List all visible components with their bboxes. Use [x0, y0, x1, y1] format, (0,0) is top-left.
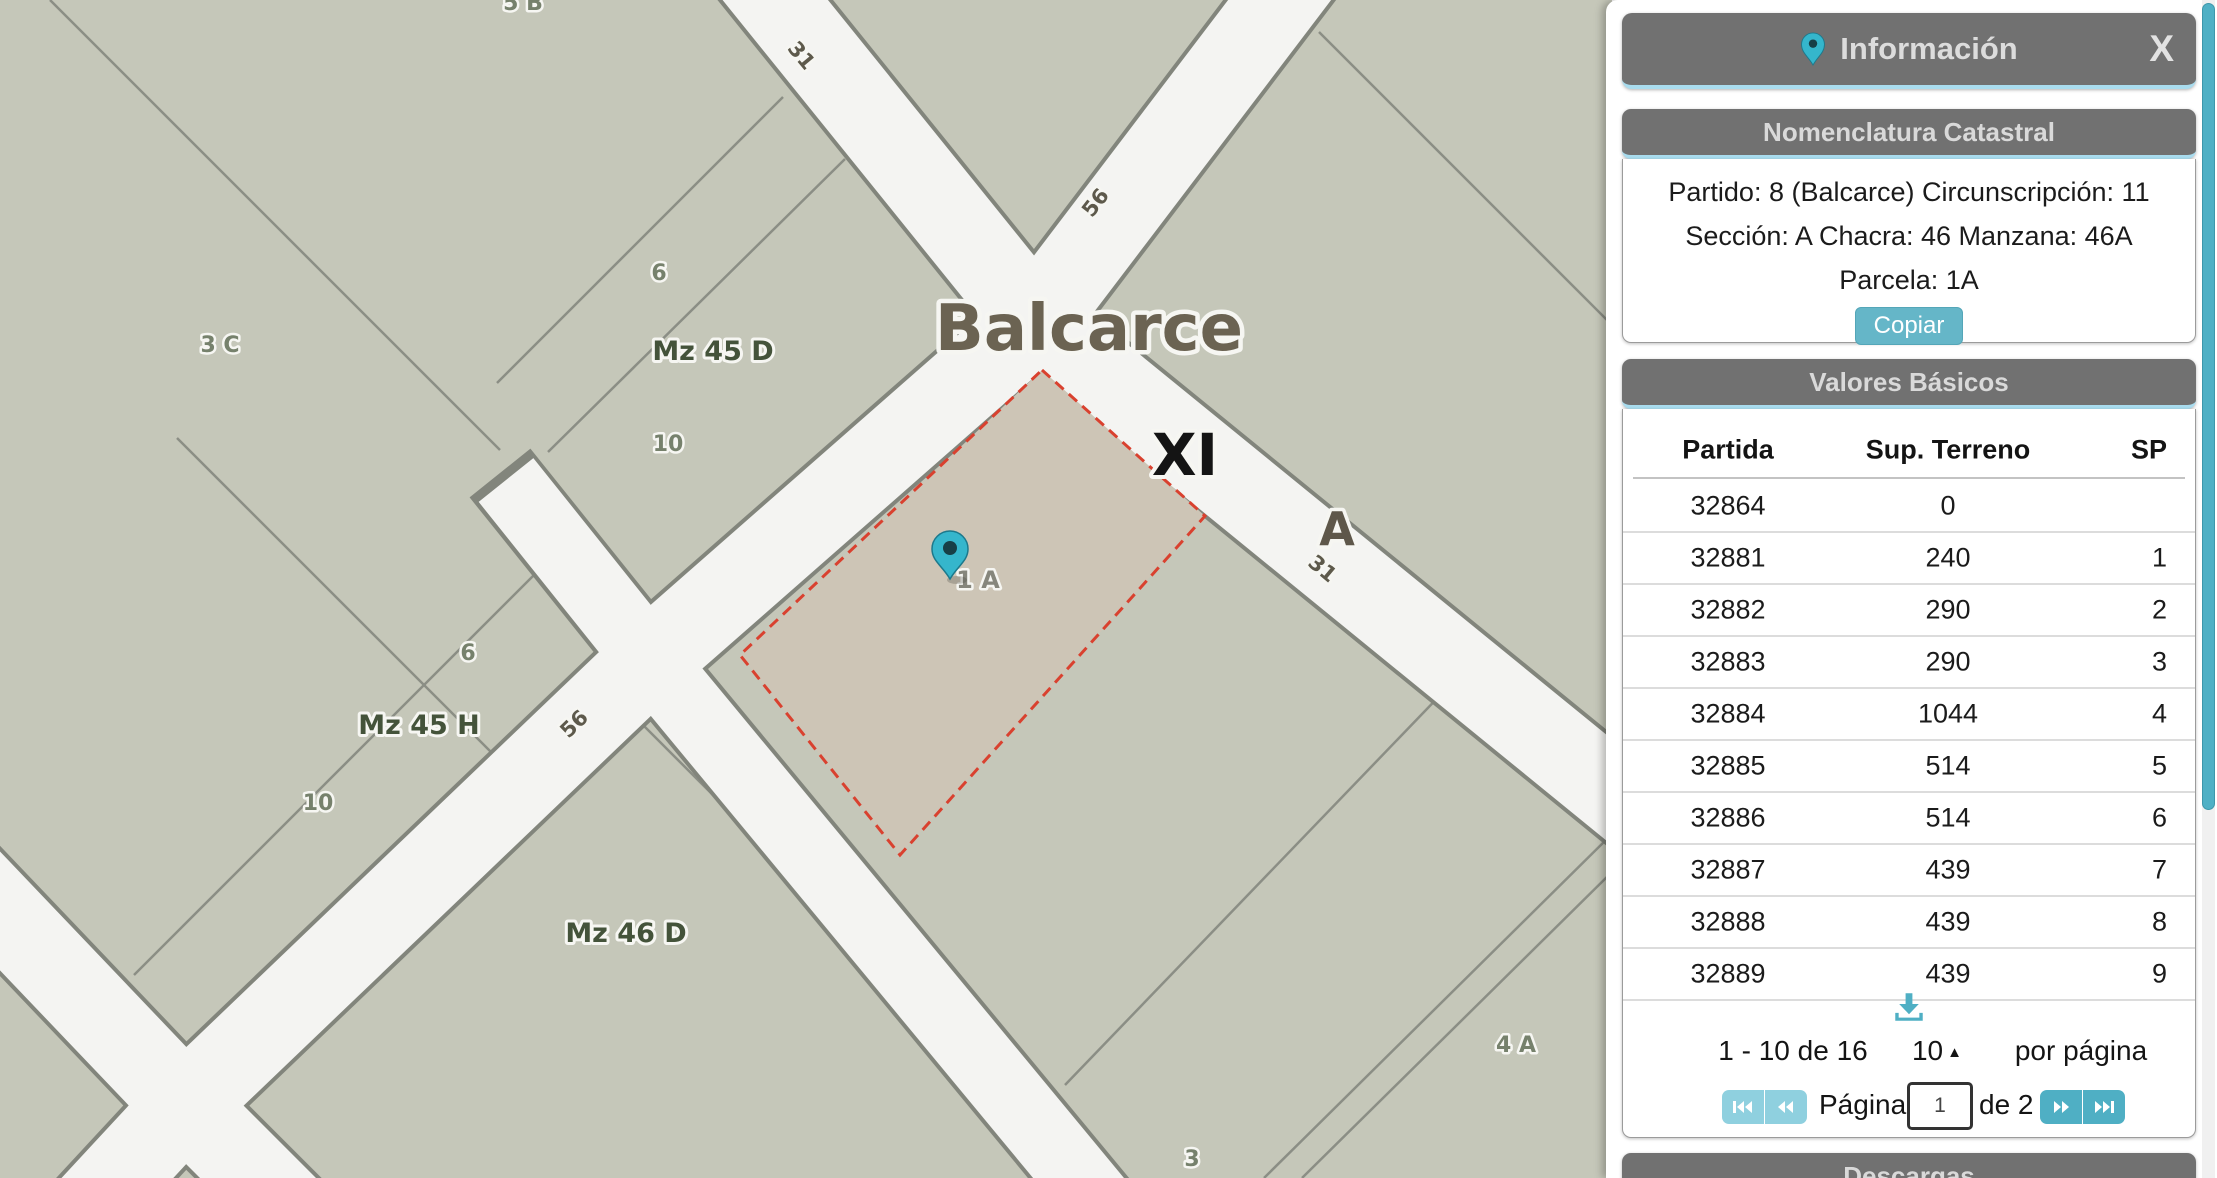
- table-body: 3286403288124013288229023288329033288410…: [1623, 481, 2195, 1001]
- nomenclatura-line: Partido: 8 (Balcarce) Circunscripción: 1…: [1623, 170, 2195, 214]
- sp-cell: 6: [2067, 803, 2167, 834]
- map-canvas[interactable]: 31565631 Mz 45 DMz 45 HMz 46 D 3 C5 B610…: [0, 0, 1612, 1178]
- parcel-number-label: 6: [651, 261, 666, 286]
- sup-terreno-cell: 439: [1803, 855, 2093, 886]
- sp-cell: 7: [2067, 855, 2167, 886]
- sup-terreno-cell: 240: [1803, 543, 2093, 574]
- section-label: A: [1319, 502, 1355, 556]
- page-size-value: 10: [1912, 1035, 1943, 1066]
- partida-cell: 32889: [1653, 959, 1803, 990]
- table-row[interactable]: 328822902: [1623, 585, 2195, 637]
- pin-icon: [1800, 31, 1826, 67]
- sup-terreno-cell: 514: [1803, 751, 2093, 782]
- descargas-title: Descargas: [1843, 1161, 1975, 1178]
- table-row[interactable]: 328855145: [1623, 741, 2195, 793]
- per-page-label: por página: [1991, 1035, 2171, 1067]
- parcel-number-label: 10: [303, 791, 334, 816]
- nomenclatura-title: Nomenclatura Catastral: [1763, 117, 2055, 148]
- partida-cell: 32864: [1653, 491, 1803, 522]
- parcel-number-label: 3: [1184, 1147, 1199, 1172]
- last-page-icon: [2093, 1100, 2115, 1114]
- table-row[interactable]: 328640: [1623, 481, 2195, 533]
- download-button[interactable]: [1623, 991, 2195, 1028]
- page-size-dropdown[interactable]: 10▲: [1899, 1035, 1975, 1067]
- block-label: Mz 46 D: [565, 918, 686, 949]
- table-row[interactable]: 3288410444: [1623, 689, 2195, 741]
- copy-button[interactable]: Copiar: [1855, 307, 1964, 345]
- column-header-partida: Partida: [1653, 435, 1803, 466]
- table-row[interactable]: 328865146: [1623, 793, 2195, 845]
- block-label: Mz 45 H: [358, 710, 480, 741]
- sup-terreno-cell: 290: [1803, 647, 2093, 678]
- download-icon: [1892, 991, 1926, 1023]
- sup-terreno-cell: 290: [1803, 595, 2093, 626]
- panel-scrollbar-thumb[interactable]: [2202, 3, 2215, 810]
- partida-cell: 32882: [1653, 595, 1803, 626]
- partida-cell: 32888: [1653, 907, 1803, 938]
- nomenclatura-line: Parcela: 1A: [1623, 258, 2195, 302]
- table-row[interactable]: 328812401: [1623, 533, 2195, 585]
- partida-cell: 32883: [1653, 647, 1803, 678]
- parcel-number-label: 5 B: [503, 0, 543, 16]
- sp-cell: 2: [2067, 595, 2167, 626]
- info-panel: Información X Nomenclatura Catastral Par…: [1606, 0, 2217, 1178]
- pagination-summary: 1 - 10 de 16 10▲ por página: [1623, 1035, 2195, 1075]
- sp-cell: 9: [2067, 959, 2167, 990]
- partida-cell: 32887: [1653, 855, 1803, 886]
- roman-numeral-label: XI: [1152, 421, 1218, 489]
- sp-cell: 3: [2067, 647, 2167, 678]
- sup-terreno-cell: 439: [1803, 907, 2093, 938]
- table-row[interactable]: 328884398: [1623, 897, 2195, 949]
- sp-cell: 4: [2067, 699, 2167, 730]
- previous-page-icon: [1776, 1100, 1796, 1114]
- previous-page-button[interactable]: [1765, 1090, 1807, 1124]
- partida-cell: 32885: [1653, 751, 1803, 782]
- partida-cell: 32881: [1653, 543, 1803, 574]
- first-page-button[interactable]: [1722, 1090, 1764, 1124]
- next-page-icon: [2051, 1100, 2071, 1114]
- descargas-section-header: Descargas: [1622, 1153, 2196, 1178]
- table-row[interactable]: 328874397: [1623, 845, 2195, 897]
- city-label: Balcarce: [935, 292, 1243, 366]
- sup-terreno-cell: 439: [1803, 959, 2093, 990]
- nomenclatura-line: Sección: A Chacra: 46 Manzana: 46A: [1623, 214, 2195, 258]
- page-number-input[interactable]: [1907, 1082, 1973, 1130]
- last-page-button[interactable]: [2083, 1090, 2125, 1124]
- sup-terreno-cell: 1044: [1803, 699, 2093, 730]
- next-page-button[interactable]: [2040, 1090, 2082, 1124]
- nomenclatura-body: Partido: 8 (Balcarce) Circunscripción: 1…: [1622, 159, 2196, 343]
- parcel-number-label: 4 A: [1496, 1033, 1536, 1058]
- valores-section-header: Valores Básicos: [1622, 359, 2196, 409]
- sp-cell: 8: [2067, 907, 2167, 938]
- dropdown-arrow-icon: ▲: [1947, 1044, 1962, 1061]
- column-header-sp: SP: [2067, 435, 2167, 466]
- parcel-number-label: 10: [653, 432, 684, 457]
- nomenclatura-section-header: Nomenclatura Catastral: [1622, 109, 2196, 159]
- pagination-controls: Página de 2: [1623, 1085, 2195, 1131]
- partida-cell: 32884: [1653, 699, 1803, 730]
- partida-cell: 32886: [1653, 803, 1803, 834]
- row-range-label: 1 - 10 de 16: [1703, 1035, 1883, 1067]
- sup-terreno-cell: 0: [1803, 491, 2093, 522]
- table-header-separator: [1633, 477, 2185, 479]
- valores-title: Valores Básicos: [1809, 367, 2008, 398]
- close-button[interactable]: X: [2149, 27, 2174, 71]
- panel-title: Información: [1840, 31, 2017, 67]
- sp-cell: 5: [2067, 751, 2167, 782]
- page-label: Página: [1819, 1089, 1906, 1121]
- sup-terreno-cell: 514: [1803, 803, 2093, 834]
- valores-body: Partida Sup. Terreno SP 3286403288124013…: [1622, 409, 2196, 1138]
- sp-cell: 1: [2067, 543, 2167, 574]
- table-header-row: Partida Sup. Terreno SP: [1623, 431, 2195, 469]
- parcel-number-label: 3 C: [200, 333, 239, 358]
- column-header-sup-terreno: Sup. Terreno: [1803, 435, 2093, 466]
- block-label: Mz 45 D: [652, 336, 773, 367]
- parcel-number-label: 6: [460, 641, 475, 666]
- table-row[interactable]: 328832903: [1623, 637, 2195, 689]
- total-pages-label: de 2: [1979, 1089, 2034, 1121]
- panel-header: Información X: [1622, 13, 2196, 89]
- first-page-icon: [1732, 1100, 1754, 1114]
